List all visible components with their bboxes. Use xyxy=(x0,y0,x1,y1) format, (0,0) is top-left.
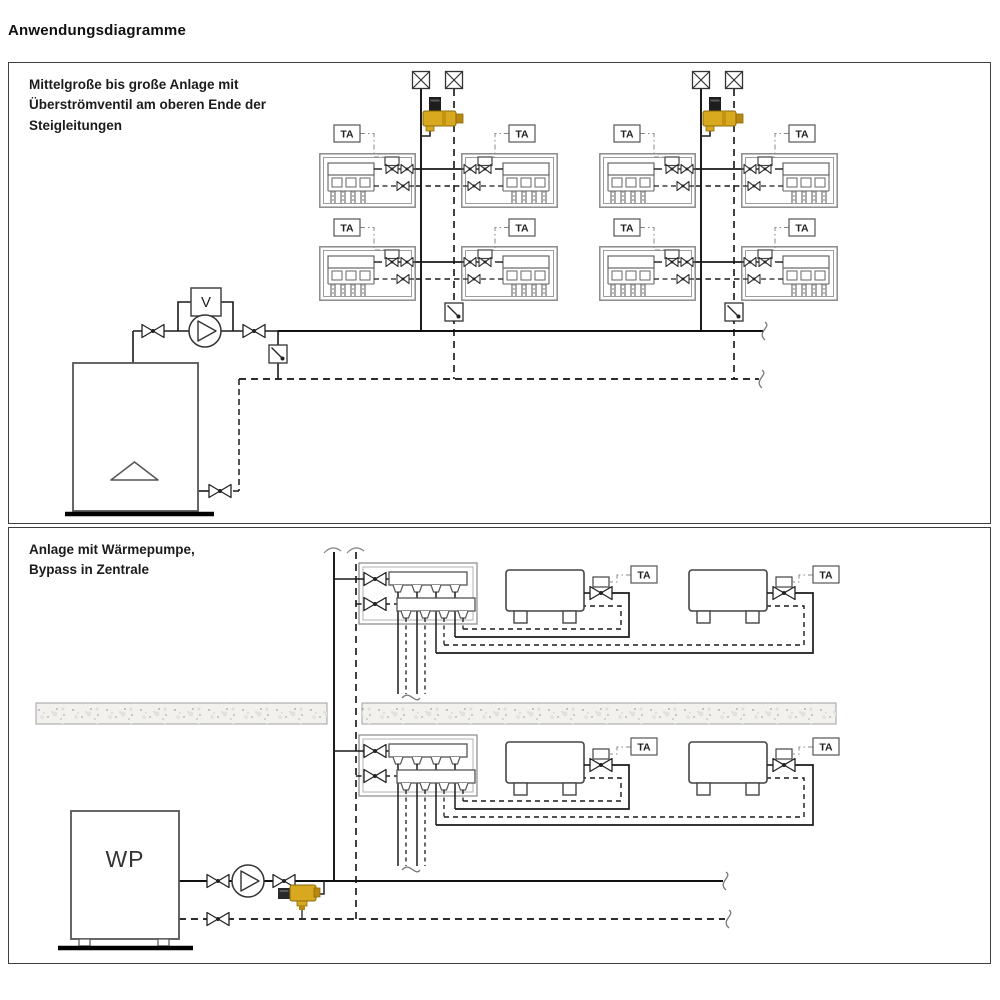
radiator-circuit xyxy=(461,154,557,207)
ta-label: TA xyxy=(340,223,354,235)
pipe-break-icon xyxy=(762,322,767,340)
valve-icon xyxy=(209,485,231,498)
pipe-break-icon xyxy=(324,548,341,553)
floor-slab xyxy=(36,703,836,724)
overflow-valve-icon xyxy=(701,97,743,136)
ta-label: TA xyxy=(819,570,833,582)
valve-icon xyxy=(207,913,229,926)
balancing-valve-icon xyxy=(725,303,743,321)
valve-icon xyxy=(207,875,229,888)
ta-label: TA xyxy=(620,223,634,235)
panel-heat-pump-system: Anlage mit Wärmepumpe, Bypass in Zentral… xyxy=(8,527,991,964)
ta-label: TA xyxy=(637,570,651,582)
ta-label: TA xyxy=(819,742,833,754)
panel-1-title-line-1: Mittelgroße bis große Anlage mit xyxy=(29,75,266,95)
riser-pair-b xyxy=(693,72,744,380)
radiator-circuit xyxy=(741,247,837,300)
heat-pump-label: WP xyxy=(105,846,144,872)
pipe-break-icon xyxy=(723,872,728,890)
ta-label: TA xyxy=(515,129,529,141)
flow-indicator-label: V xyxy=(201,294,211,311)
boiler xyxy=(65,363,214,514)
air-vent-icon xyxy=(693,72,710,89)
pump-icon xyxy=(232,865,264,897)
ta-label: TA xyxy=(515,223,529,235)
floor-circuit-upper xyxy=(334,563,839,700)
panel-1-title-line-3: Steigleitungen xyxy=(29,116,266,136)
panel-1-title: Mittelgroße bis große Anlage mit Überstr… xyxy=(29,75,266,136)
page-title: Anwendungsdiagramme xyxy=(8,22,186,39)
ta-label: TA xyxy=(620,129,634,141)
ta-label: TA xyxy=(637,742,651,754)
radiator-circuit xyxy=(320,154,416,207)
radiator-circuit xyxy=(741,154,837,207)
air-vent-icon xyxy=(413,72,430,89)
panel-medium-large-system: Mittelgroße bis große Anlage mit Überstr… xyxy=(8,62,991,524)
overflow-valve-icon xyxy=(421,97,463,136)
valve-icon xyxy=(243,325,265,338)
panel-2-title-line-2: Bypass in Zentrale xyxy=(29,560,195,580)
panel-2-title-line-1: Anlage mit Wärmepumpe, xyxy=(29,540,195,560)
air-vent-icon xyxy=(726,72,743,89)
floor-circuit-lower xyxy=(334,735,839,872)
diagram-heat-pump-bypass: WP TA TA TA TA xyxy=(9,528,990,963)
panel-1-title-line-2: Überströmventil am oberen Ende der xyxy=(29,95,266,115)
valve-icon xyxy=(142,325,164,338)
heat-pump-circuit xyxy=(179,865,731,928)
riser-pair-a xyxy=(413,72,464,380)
ta-label: TA xyxy=(340,129,354,141)
bypass-overflow-valve-icon xyxy=(278,881,324,919)
radiator-circuit xyxy=(320,247,416,300)
radiator-circuit xyxy=(600,247,696,300)
radiator-circuit xyxy=(461,247,557,300)
ta-label: TA xyxy=(795,223,809,235)
pipe-break-icon xyxy=(726,910,731,928)
application-diagrams-page: Anwendungsdiagramme Mittelgroße bis groß… xyxy=(0,0,1000,1000)
ta-label: TA xyxy=(795,129,809,141)
heat-pump: WP xyxy=(58,811,193,948)
pump-icon xyxy=(189,315,221,347)
pipe-break-icon xyxy=(759,370,764,388)
radiator-circuit xyxy=(600,154,696,207)
panel-2-title: Anlage mit Wärmepumpe, Bypass in Zentral… xyxy=(29,540,195,581)
air-vent-icon xyxy=(446,72,463,89)
balancing-valve-icon xyxy=(269,345,287,363)
balancing-valve-icon xyxy=(445,303,463,321)
